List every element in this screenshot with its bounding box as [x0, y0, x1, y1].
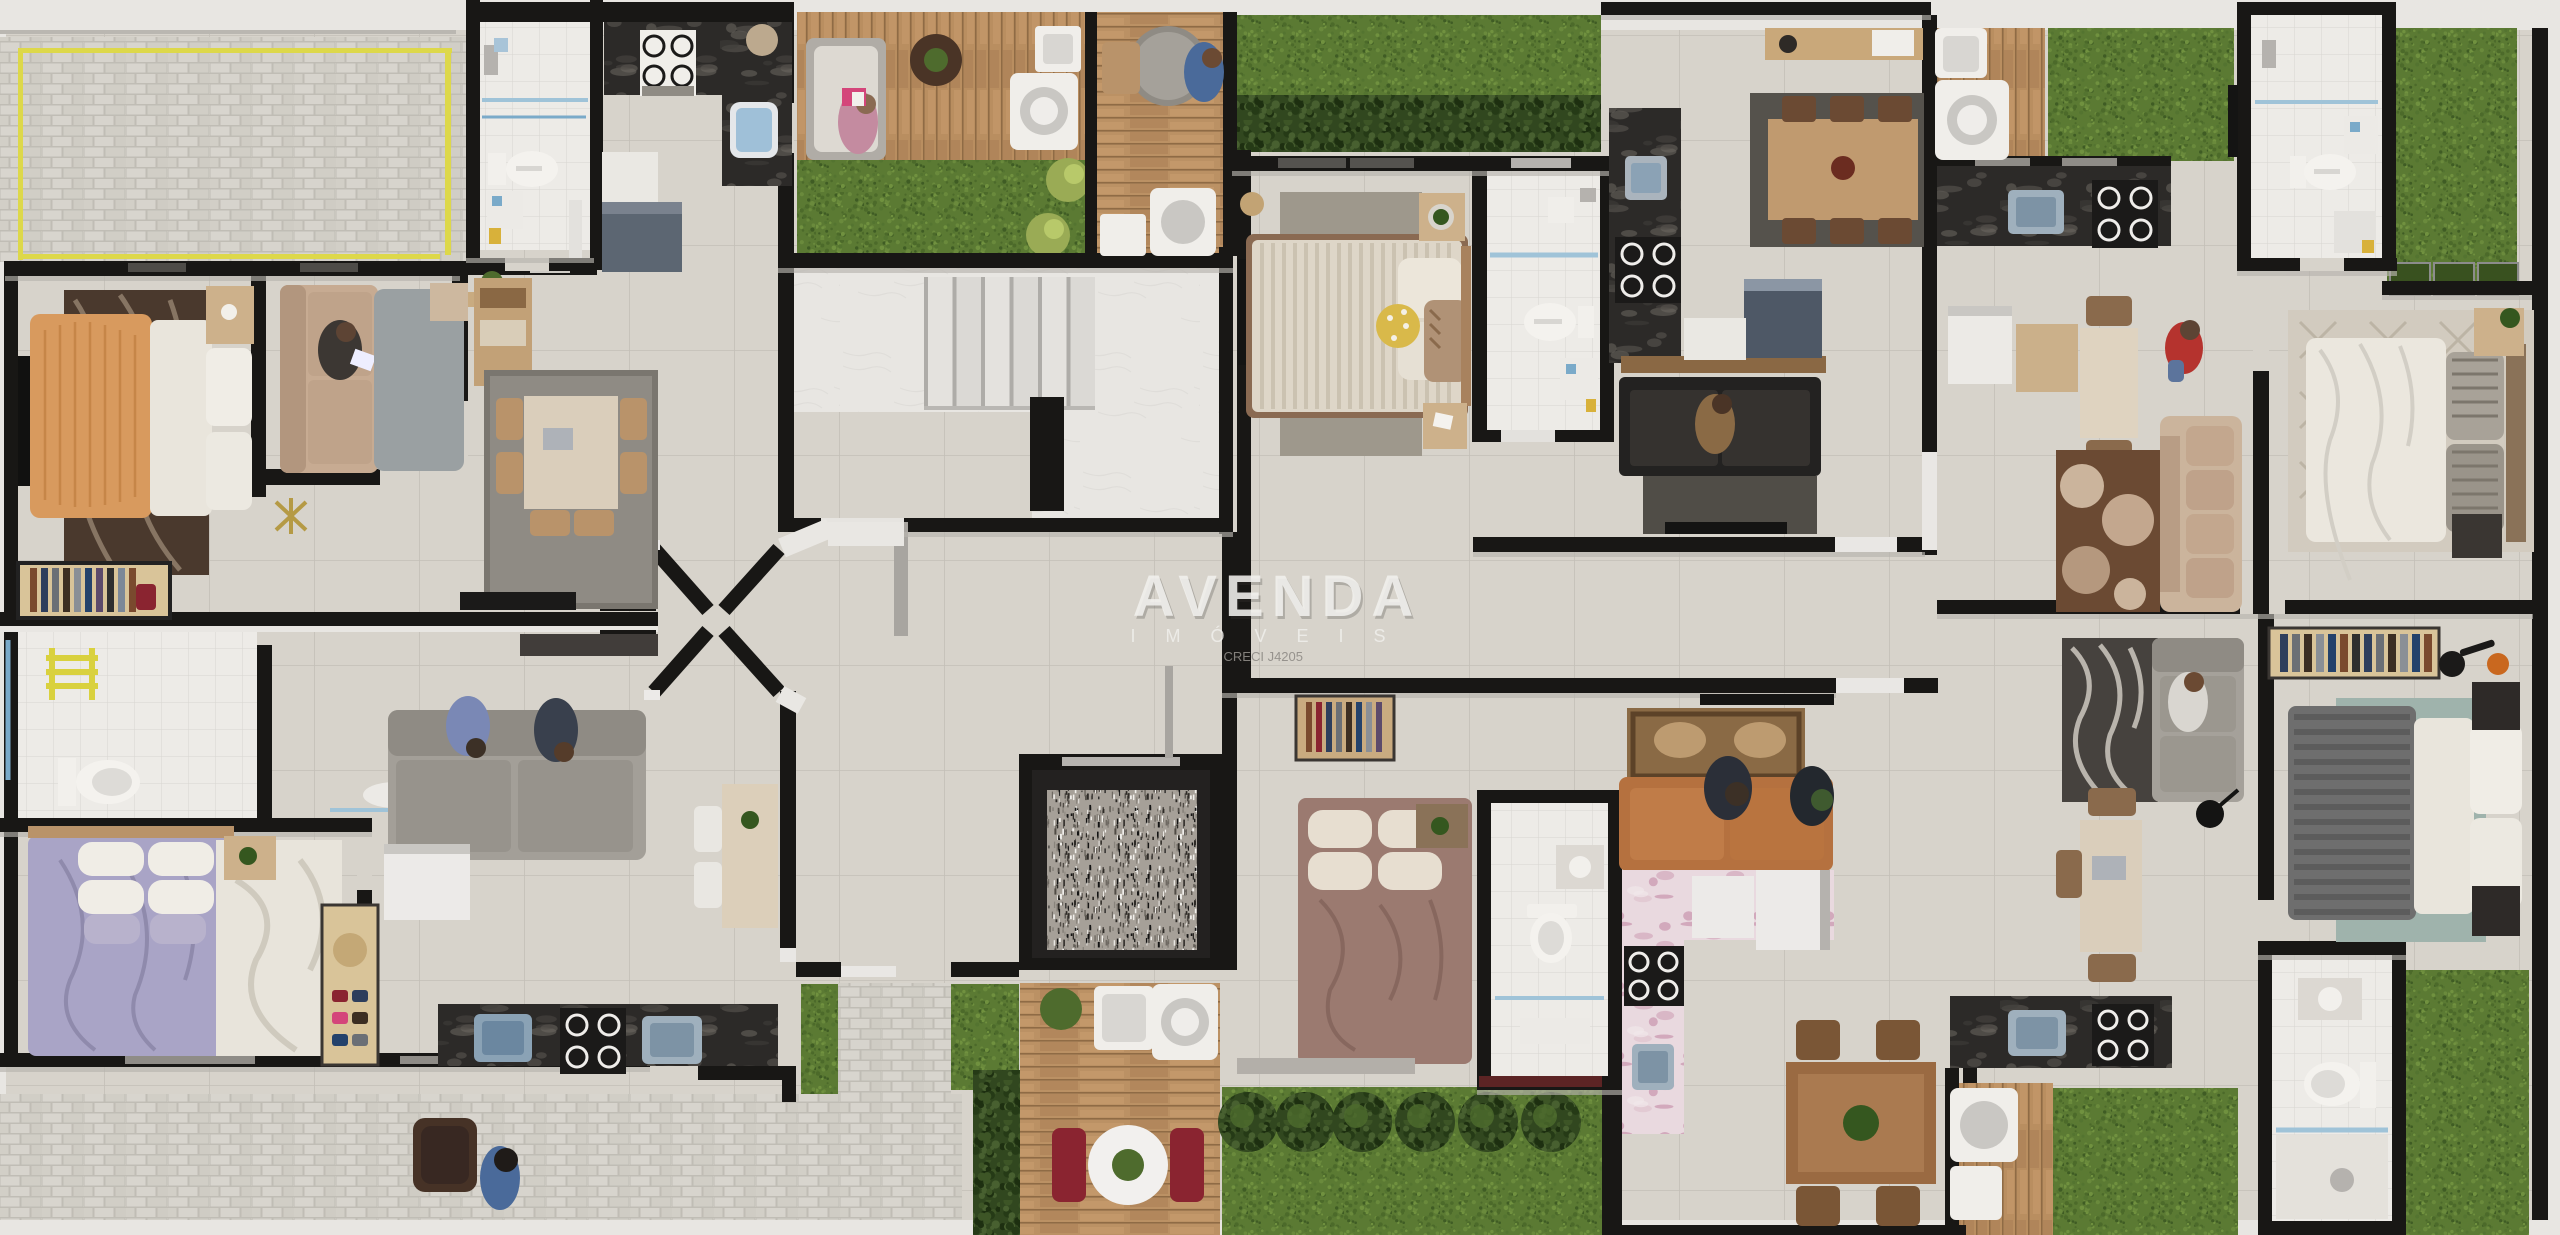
svg-text:CRECI J4205: CRECI J4205 [1224, 649, 1303, 664]
svg-text:IMÓVEIS: IMÓVEIS [1130, 625, 1415, 646]
svg-text:AVENDA: AVENDA [1133, 564, 1422, 629]
